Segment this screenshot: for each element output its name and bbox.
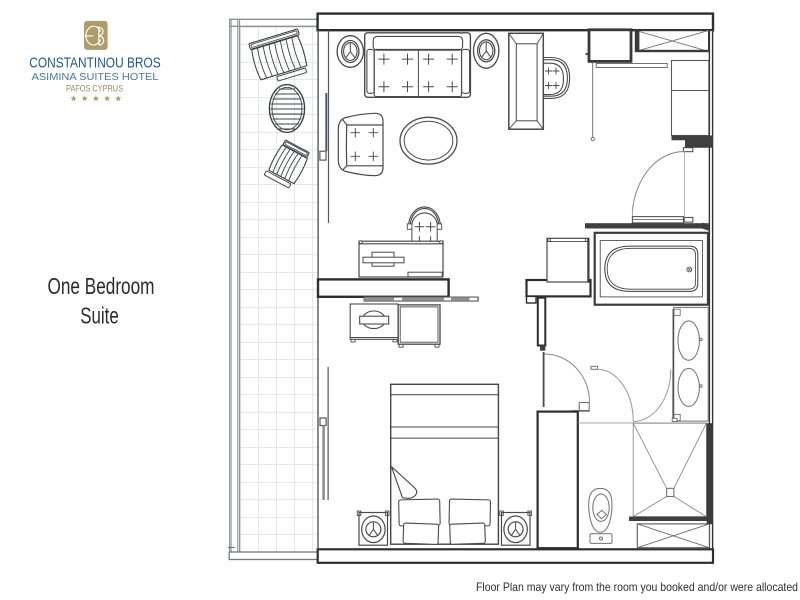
svg-text:One Bedroom: One Bedroom xyxy=(48,273,155,299)
svg-text:CONSTANTINOU BROS: CONSTANTINOU BROS xyxy=(29,54,161,71)
svg-text:Suite: Suite xyxy=(80,303,119,329)
svg-text:PAFOS CYPRUS: PAFOS CYPRUS xyxy=(66,84,123,94)
svg-text:Floor Plan may vary from the r: Floor Plan may vary from the room you bo… xyxy=(476,580,798,594)
svg-text:ASIMINA SUITES HOTEL: ASIMINA SUITES HOTEL xyxy=(32,71,159,83)
